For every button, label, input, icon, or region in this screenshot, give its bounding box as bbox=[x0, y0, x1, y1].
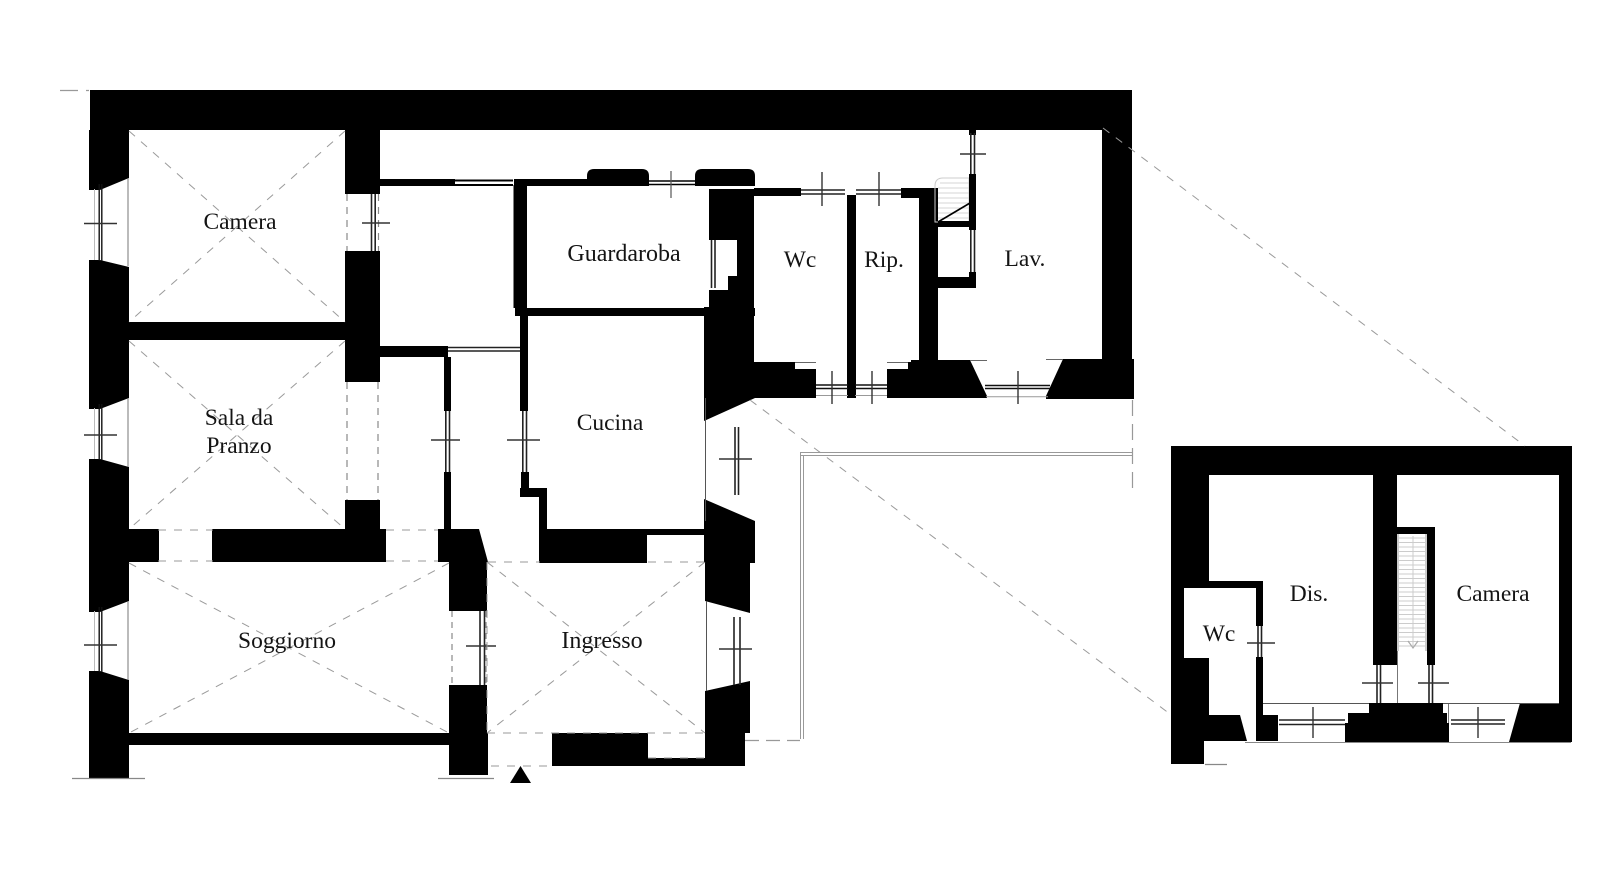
svg-text:Lav.: Lav. bbox=[1005, 246, 1046, 272]
svg-text:Dis.: Dis. bbox=[1290, 581, 1329, 607]
svg-text:Wc: Wc bbox=[784, 247, 817, 273]
svg-text:Sala da: Sala da bbox=[205, 405, 274, 431]
svg-text:Ingresso: Ingresso bbox=[561, 628, 642, 654]
svg-text:Pranzo: Pranzo bbox=[206, 433, 271, 459]
svg-text:Camera: Camera bbox=[203, 209, 277, 235]
svg-text:Guardaroba: Guardaroba bbox=[567, 241, 681, 267]
svg-text:Cucina: Cucina bbox=[577, 410, 644, 436]
svg-text:Rip.: Rip. bbox=[864, 247, 904, 273]
svg-text:Camera: Camera bbox=[1456, 581, 1530, 607]
svg-text:Wc: Wc bbox=[1203, 621, 1236, 647]
svg-text:Soggiorno: Soggiorno bbox=[238, 628, 336, 654]
